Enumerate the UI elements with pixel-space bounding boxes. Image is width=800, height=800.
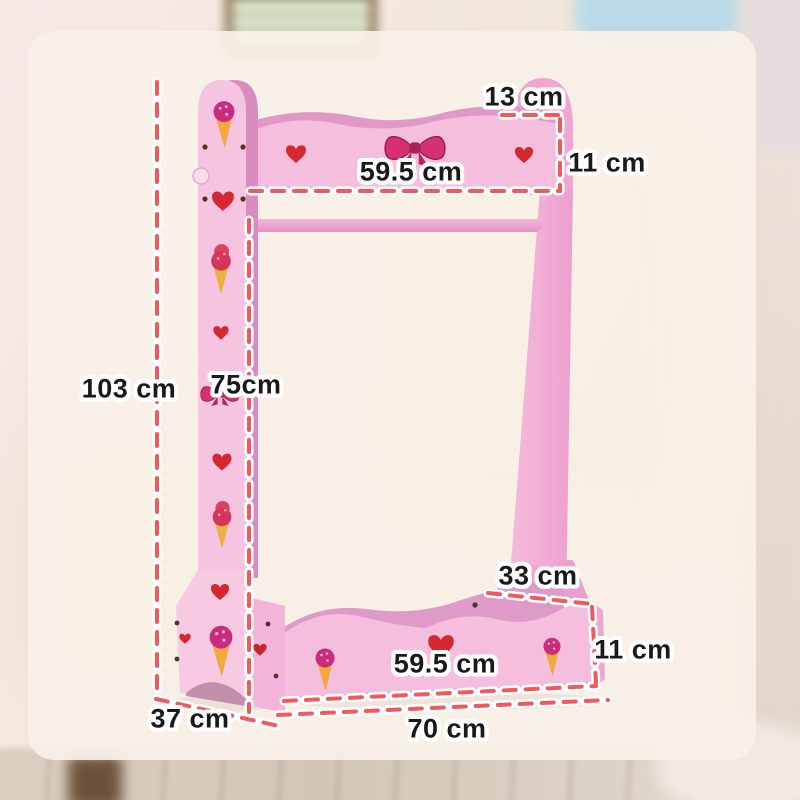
dimension-label-overall-width: 70 cm [407, 716, 486, 743]
dimension-label-top-rail-height: 11 cm [568, 150, 646, 177]
dimension-label-base-top-depth: 33 cm [498, 563, 577, 590]
dimension-labels: 13 cm 11 cm 59.5 cm 103 cm 75cm 33 cm 11… [0, 0, 800, 800]
dimension-label-top-rail-width: 59.5 cm [360, 159, 463, 186]
dimension-label-hanging-clearance: 75cm [210, 372, 281, 399]
dimension-label-overall-height: 103 cm [82, 376, 177, 403]
dimension-label-top-depth: 13 cm [484, 84, 563, 111]
dimension-label-base-inner-width: 59.5 cm [394, 651, 497, 678]
product-dimension-screenshot: 13 cm 11 cm 59.5 cm 103 cm 75cm 33 cm 11… [0, 0, 800, 800]
dimension-label-base-height: 11 cm [594, 637, 672, 664]
dimension-label-overall-depth: 37 cm [150, 706, 229, 733]
